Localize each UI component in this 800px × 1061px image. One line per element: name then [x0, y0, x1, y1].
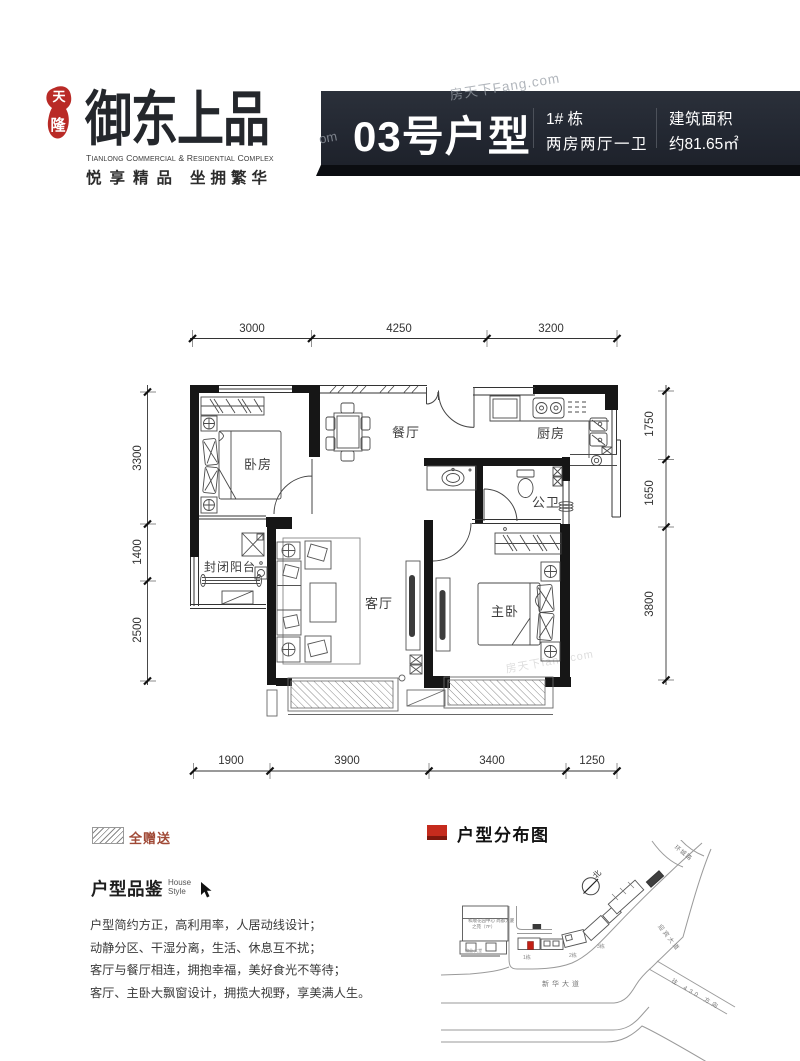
svg-text:和顺花园中心 尚都大厦: 和顺花园中心 尚都大厦: [468, 917, 515, 924]
svg-text:北: 北: [591, 868, 603, 880]
svg-text:4250: 4250: [386, 323, 412, 335]
svg-text:3栋: 3栋: [597, 943, 605, 950]
svg-text:3300: 3300: [132, 445, 144, 471]
svg-text:封闭阳台: 封闭阳台: [204, 559, 256, 574]
svg-text:3800: 3800: [644, 591, 656, 617]
svg-text:迎宾大道: 迎宾大道: [656, 923, 682, 953]
svg-text:往 430 方向: 往 430 方向: [670, 977, 722, 1012]
svg-text:3000: 3000: [239, 323, 265, 335]
svg-text:物业 大堂: 物业 大堂: [465, 947, 482, 953]
svg-text:新华大道: 新华大道: [542, 979, 582, 988]
svg-text:3400: 3400: [479, 755, 505, 767]
svg-text:2500: 2500: [132, 617, 144, 643]
svg-text:卧房: 卧房: [244, 457, 272, 472]
svg-text:客厅: 客厅: [365, 596, 393, 611]
svg-text:1750: 1750: [644, 411, 656, 437]
svg-text:3200: 3200: [538, 323, 564, 335]
svg-text:1栋: 1栋: [523, 954, 531, 961]
svg-text:1250: 1250: [579, 755, 605, 767]
svg-text:1650: 1650: [644, 480, 656, 506]
svg-text:公卫: 公卫: [532, 495, 560, 510]
svg-text:餐厅: 餐厅: [392, 425, 420, 440]
svg-text:厨房: 厨房: [537, 426, 565, 441]
svg-text:之苑（7F）: 之苑（7F）: [472, 923, 495, 930]
svg-text:2栋: 2栋: [569, 952, 577, 959]
svg-text:1900: 1900: [218, 755, 244, 767]
svg-text:3900: 3900: [334, 755, 360, 767]
svg-text:1400: 1400: [132, 539, 144, 565]
svg-text:主卧: 主卧: [491, 604, 519, 619]
